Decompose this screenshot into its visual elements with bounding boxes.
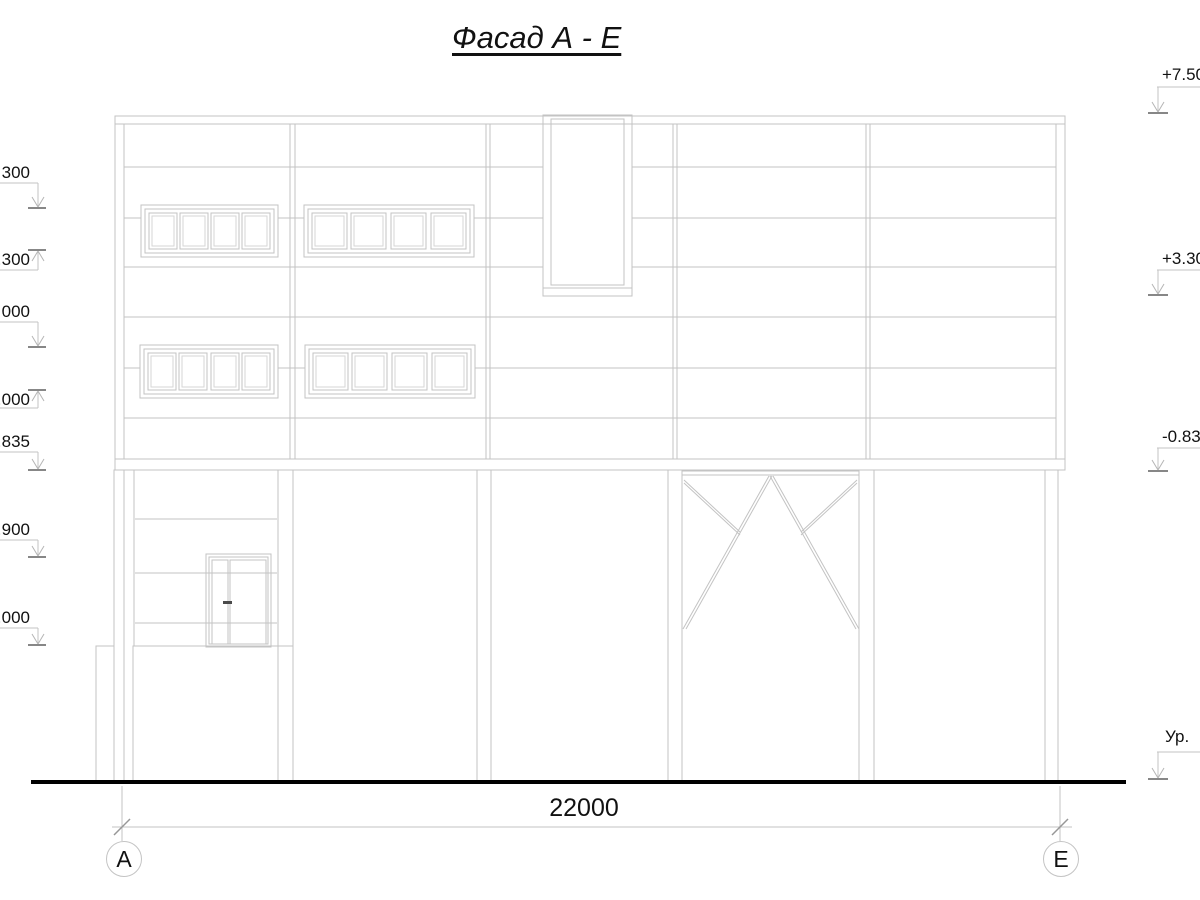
elevation-label-left-6: .900: [0, 521, 30, 539]
central-shaft: [543, 115, 632, 296]
window-row2-right: [305, 345, 475, 398]
building-upper-block: [115, 116, 1065, 470]
axis-marker-a: А: [106, 841, 142, 877]
elevation-label-left-7: .000: [0, 609, 30, 627]
facade-linework: [0, 0, 1200, 900]
elevation-label-left-4: .000: [0, 391, 30, 409]
elevation-label-right-3: -0.83: [1162, 428, 1200, 446]
entrance-door: [206, 554, 271, 647]
elevation-label-left-5: .835: [0, 433, 30, 451]
window-row2-left: [140, 345, 278, 398]
elevation-label-right-1: +7.50: [1162, 66, 1200, 84]
elevation-mark-left-6: [0, 540, 46, 557]
elevation-mark-right-2: [1148, 270, 1200, 295]
elevation-mark-right-1: [1148, 87, 1200, 113]
lower-left-wall: [96, 470, 293, 782]
vertical-bracing-bay: [682, 471, 859, 629]
window-row1-right: [304, 205, 474, 257]
elevation-label-right-2: +3.30: [1162, 250, 1200, 268]
facade-drawing-page: Фасад А - Е 300 .300 000 .000 .835 .900 …: [0, 0, 1200, 900]
elevation-mark-right-3: [1148, 448, 1200, 471]
window-row1-left: [141, 205, 278, 257]
elevation-label-left-1: 300: [0, 164, 30, 182]
ground-level-label: Ур.: [1165, 728, 1189, 746]
entrance-step: [96, 646, 114, 782]
elevation-label-left-3: 000: [0, 303, 30, 321]
elevation-label-left-2: .300: [0, 251, 30, 269]
dimension-label: 22000: [534, 794, 634, 823]
drawing-title: Фасад А - Е: [452, 20, 621, 56]
elevation-mark-left-7: [0, 628, 46, 645]
columns: [114, 470, 1058, 782]
plinth: [133, 646, 278, 782]
door-handle: [223, 601, 232, 604]
axis-marker-e: Е: [1043, 841, 1079, 877]
panel-vertical-joints: [290, 124, 870, 459]
elevation-mark-left-3: [0, 322, 46, 347]
elevation-mark-left-1: [0, 183, 46, 208]
elevation-mark-right-4: [1148, 752, 1200, 779]
elevation-mark-left-5: [0, 452, 46, 470]
